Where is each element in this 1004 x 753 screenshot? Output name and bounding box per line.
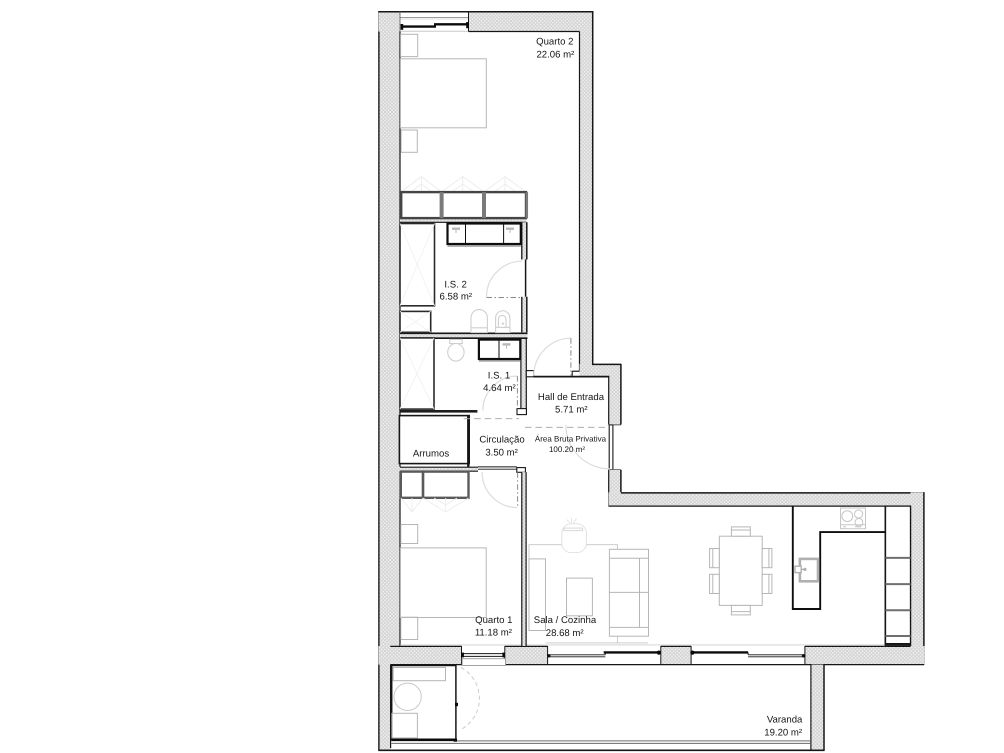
svg-text:Arrumos: Arrumos [413, 448, 449, 459]
svg-text:6.58 m²: 6.58 m² [440, 292, 473, 303]
svg-text:22.06 m²: 22.06 m² [536, 50, 575, 61]
svg-text:Varanda: Varanda [767, 714, 803, 725]
svg-text:5.71 m²: 5.71 m² [555, 405, 588, 416]
svg-text:Hall de Entrada: Hall de Entrada [538, 392, 605, 403]
svg-text:Quarto 2: Quarto 2 [536, 36, 573, 47]
svg-text:28.68 m²: 28.68 m² [546, 628, 585, 639]
svg-text:I.S. 2: I.S. 2 [444, 279, 466, 290]
svg-text:100.20 m²: 100.20 m² [549, 445, 585, 454]
svg-text:4.64 m²: 4.64 m² [483, 383, 516, 394]
svg-text:11.18 m²: 11.18 m² [475, 627, 513, 638]
svg-text:Quarto 1: Quarto 1 [475, 615, 512, 626]
svg-text:19.20 m²: 19.20 m² [764, 727, 803, 738]
svg-text:Área Bruta Privativa: Área Bruta Privativa [535, 434, 607, 443]
svg-text:3.50 m²: 3.50 m² [485, 448, 518, 459]
svg-text:I.S. 1: I.S. 1 [488, 370, 510, 381]
svg-text:Sala / Cozinha: Sala / Cozinha [534, 615, 597, 626]
svg-text:Circulação: Circulação [479, 435, 524, 446]
